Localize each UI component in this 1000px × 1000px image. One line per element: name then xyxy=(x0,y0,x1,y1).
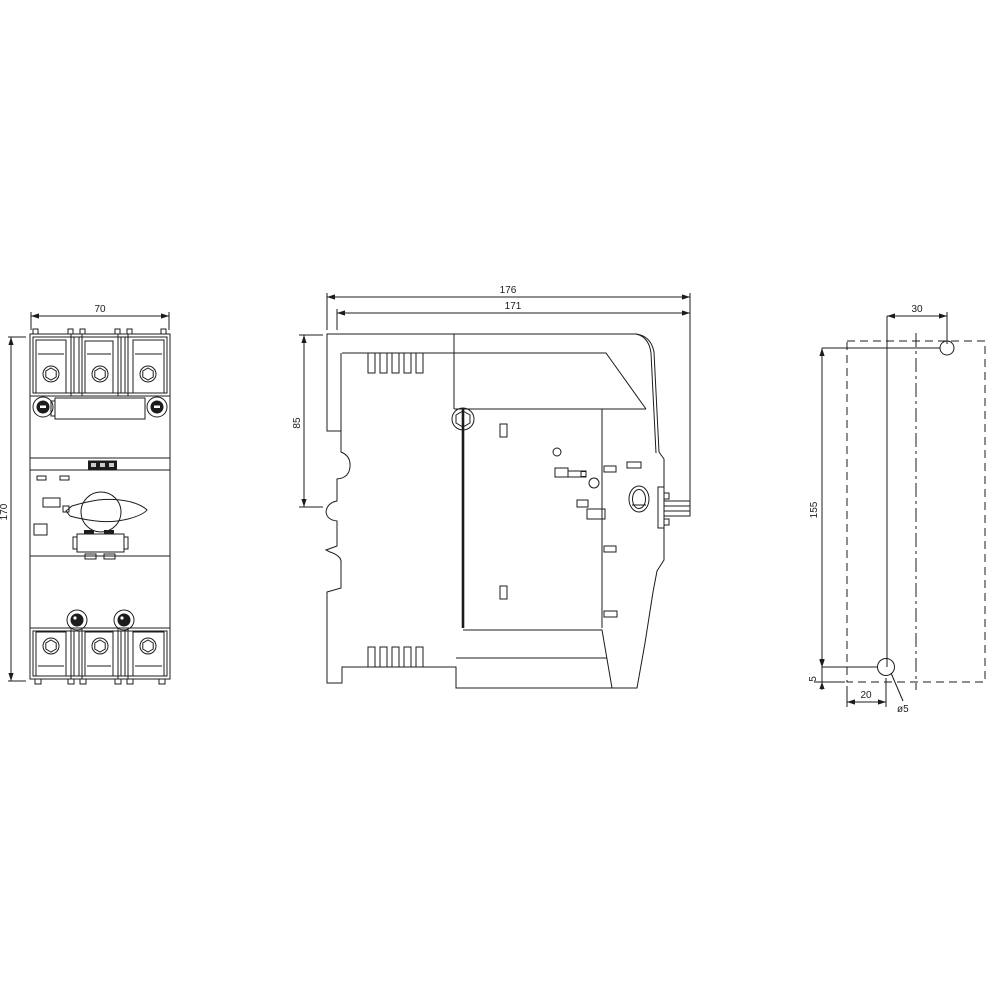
drilling-plan: 30 155 5 20 ø5 xyxy=(808,304,985,715)
side-view: 176 171 85 xyxy=(292,285,690,688)
dim-bottom-offset: 5 xyxy=(808,659,845,690)
front-upper-mounting-screws xyxy=(33,397,167,417)
dim-label-85: 85 xyxy=(292,417,303,429)
dim-hole-spacing: 155 xyxy=(809,348,825,667)
dim-side-depth-body: 171 xyxy=(337,301,690,330)
front-bottom-tabs xyxy=(35,679,165,684)
drive-shaft xyxy=(658,487,690,528)
drawing-canvas: 70 170 xyxy=(0,0,1000,1000)
front-lower-mounting-screws xyxy=(67,610,134,630)
drill-hole-bottom xyxy=(878,659,895,676)
dimension-drawing: 70 170 xyxy=(0,0,1000,1000)
dim-label-176: 176 xyxy=(500,285,517,296)
dim-label-155: 155 xyxy=(809,501,820,518)
side-bottom-terminal-block xyxy=(368,630,612,688)
dim-label-30: 30 xyxy=(911,304,923,315)
dim-front-width: 70 xyxy=(31,304,169,330)
front-bottom-terminal-block xyxy=(30,628,170,684)
dim-label-70: 70 xyxy=(94,304,106,315)
front-top-tabs xyxy=(33,329,166,334)
hex-bolt xyxy=(452,408,474,628)
terminal-holes-bottom xyxy=(43,638,156,654)
hole-diameter-callout: ø5 xyxy=(891,673,909,715)
front-indicator-band xyxy=(30,458,170,470)
rotary-handle xyxy=(63,492,147,532)
side-mechanism-details xyxy=(500,424,641,617)
setting-scale-window xyxy=(73,530,128,559)
top-vent-slats xyxy=(368,353,423,373)
bottom-vent-slats xyxy=(368,647,423,667)
dim-label-diameter: ø5 xyxy=(897,704,909,715)
dim-front-height: 170 xyxy=(0,337,26,681)
dim-label-170: 170 xyxy=(0,503,10,520)
front-body-sides xyxy=(30,396,170,628)
front-middle-section xyxy=(30,476,170,559)
side-front-inner-edge xyxy=(636,334,656,453)
side-knob xyxy=(629,486,649,512)
terminal-holes-top xyxy=(43,366,156,382)
front-top-terminal-block xyxy=(30,334,170,396)
front-view: 70 170 xyxy=(0,304,170,684)
dim-side-rail-offset: 85 xyxy=(292,335,323,507)
dim-hole-offset-x: 30 xyxy=(887,304,947,344)
side-outline xyxy=(326,334,664,688)
front-label-plate xyxy=(51,398,145,419)
dim-label-5: 5 xyxy=(808,676,819,682)
side-top-terminal-block xyxy=(342,334,646,409)
dim-label-171: 171 xyxy=(505,301,522,312)
dim-label-20: 20 xyxy=(860,690,872,701)
